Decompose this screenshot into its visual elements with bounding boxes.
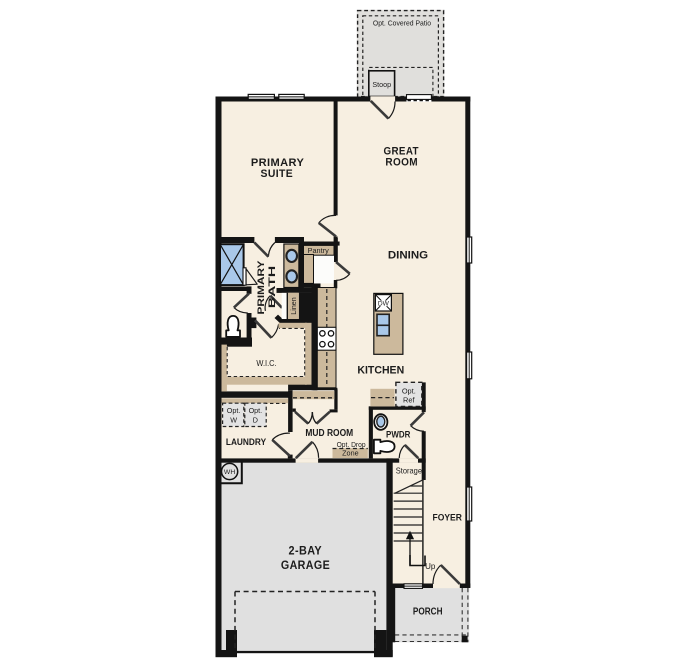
svg-text:DW: DW [378, 301, 390, 308]
svg-text:BATH: BATH [267, 266, 277, 308]
svg-text:PRIMARY: PRIMARY [256, 261, 266, 315]
svg-text:Opt.: Opt. [227, 406, 241, 415]
svg-text:FOYER: FOYER [433, 512, 462, 523]
svg-text:PORCH: PORCH [413, 607, 443, 618]
svg-text:Pantry: Pantry [308, 246, 329, 255]
svg-text:Ref: Ref [403, 396, 415, 405]
svg-text:Up: Up [425, 562, 436, 571]
svg-text:PWDR: PWDR [386, 430, 411, 440]
svg-text:D: D [253, 416, 258, 425]
svg-text:ROOM: ROOM [385, 157, 418, 169]
svg-text:MUD ROOM: MUD ROOM [305, 428, 353, 439]
svg-text:Zone: Zone [342, 448, 359, 457]
svg-text:LAUNDRY: LAUNDRY [226, 436, 267, 447]
svg-text:DINING: DINING [388, 250, 428, 262]
svg-text:Opt.: Opt. [249, 406, 263, 415]
svg-text:W: W [230, 416, 237, 425]
svg-text:KITCHEN: KITCHEN [357, 364, 404, 376]
svg-text:Linen: Linen [289, 297, 298, 315]
svg-text:Opt. Covered Patio: Opt. Covered Patio [373, 21, 431, 28]
svg-text:2-BAY: 2-BAY [289, 545, 323, 557]
svg-text:Storage: Storage [396, 466, 423, 475]
svg-text:W.I.C.: W.I.C. [256, 358, 276, 368]
svg-text:WH: WH [224, 469, 235, 476]
svg-text:SUITE: SUITE [261, 168, 294, 180]
svg-text:GARAGE: GARAGE [281, 560, 330, 572]
svg-text:Stoop: Stoop [372, 80, 391, 89]
svg-text:Opt.: Opt. [402, 387, 416, 396]
